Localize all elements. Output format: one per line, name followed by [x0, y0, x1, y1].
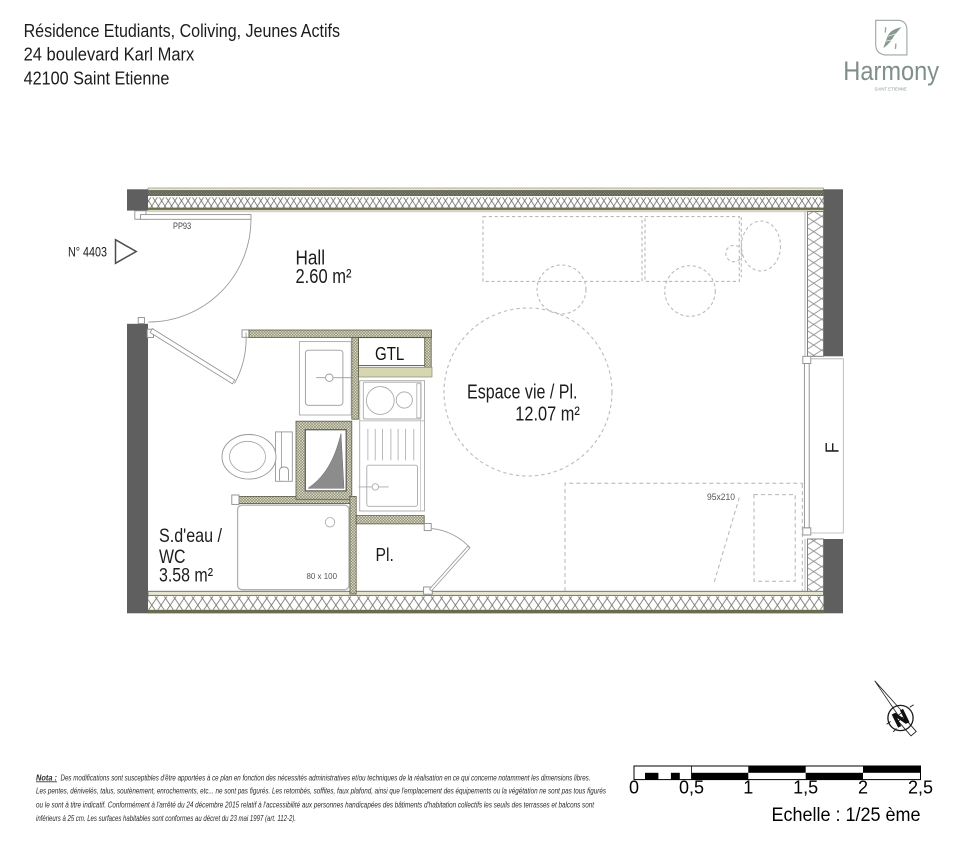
svg-text:S.d'eau /: S.d'eau / — [159, 525, 222, 547]
svg-text:2.60 m²: 2.60 m² — [296, 266, 352, 288]
svg-text:Pl.: Pl. — [376, 544, 394, 565]
svg-text:2: 2 — [858, 777, 868, 797]
svg-text:N° 4403: N° 4403 — [68, 245, 107, 260]
svg-text:1: 1 — [743, 777, 753, 797]
svg-text:ou le sont à titre indicatif.: ou le sont à titre indicatif. Conforméme… — [36, 801, 595, 810]
svg-text:PP93: PP93 — [173, 221, 191, 232]
svg-text:80 x 100: 80 x 100 — [307, 571, 338, 581]
svg-text:Les pentes, dénivelés, talus,: Les pentes, dénivelés, talus, soutènemen… — [36, 787, 606, 796]
svg-text:GTL: GTL — [375, 343, 404, 364]
svg-text:12.07 m²: 12.07 m² — [515, 404, 580, 426]
svg-text:SAINT ETIENNE: SAINT ETIENNE — [875, 86, 907, 91]
svg-text:inférieurs à 25 cm. Les surfac: inférieurs à 25 cm. Les surfaces habitab… — [36, 814, 296, 823]
svg-text:95x210: 95x210 — [707, 492, 735, 502]
svg-text:0: 0 — [629, 777, 639, 797]
svg-text:1,5: 1,5 — [793, 777, 818, 797]
svg-text:Echelle : 1/25 ème: Echelle : 1/25 ème — [772, 805, 921, 826]
svg-text:Espace vie / Pl.: Espace vie / Pl. — [467, 381, 578, 403]
svg-text:F: F — [823, 442, 843, 453]
svg-text:42100 Saint Etienne: 42100 Saint Etienne — [24, 67, 170, 88]
svg-text:0,5: 0,5 — [679, 777, 704, 797]
svg-text:24 boulevard Karl Marx: 24 boulevard Karl Marx — [24, 44, 195, 65]
svg-text:2,5: 2,5 — [908, 777, 933, 797]
svg-text:Harmony: Harmony — [843, 56, 939, 86]
svg-text:Des modifications sont suscept: Des modifications sont susceptibles d'êt… — [61, 773, 591, 782]
svg-text:Résidence Etudiants, Coliving,: Résidence Etudiants, Coliving, Jeunes Ac… — [24, 20, 340, 41]
svg-text:Nota :: Nota : — [36, 773, 57, 782]
svg-text:3.58 m²: 3.58 m² — [159, 564, 213, 586]
